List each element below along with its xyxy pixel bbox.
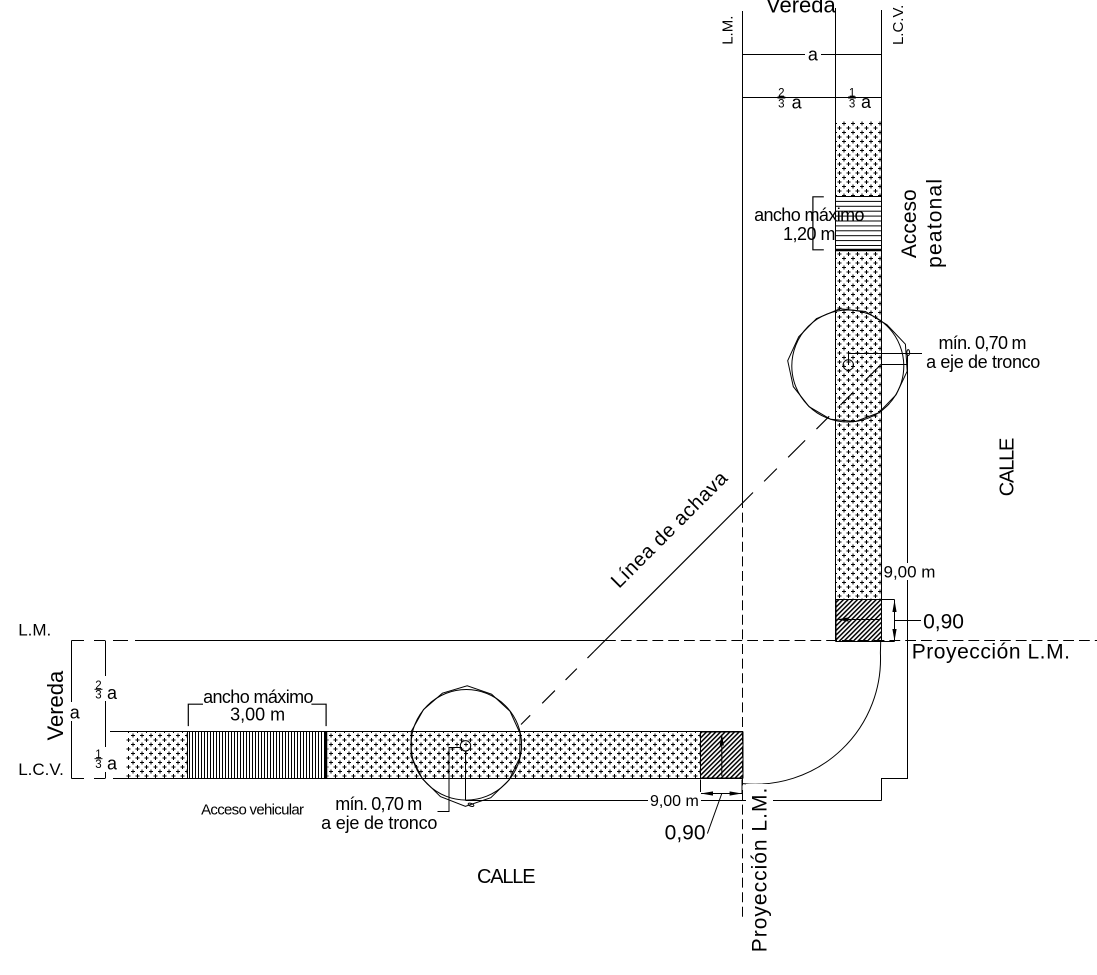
svg-text:Acceso vehicular: Acceso vehicular (201, 802, 304, 819)
svg-text:Proyección L.M.: Proyección L.M. (749, 787, 772, 953)
svg-text:peatonal: peatonal (923, 178, 946, 268)
svg-text:3: 3 (849, 99, 855, 111)
svg-text:a: a (861, 92, 872, 112)
svg-text:CALLE: CALLE (477, 866, 535, 888)
svg-text:Vereda: Vereda (766, 0, 836, 17)
svg-text:a: a (107, 754, 118, 774)
svg-text:L.M.: L.M. (18, 621, 51, 640)
svg-text:Acceso: Acceso (898, 189, 921, 258)
svg-text:L.C.V.: L.C.V. (18, 760, 64, 779)
svg-text:0,90: 0,90 (665, 821, 706, 844)
svg-text:Vereda: Vereda (43, 670, 68, 740)
svg-text:a eje de tronco: a eje de tronco (321, 813, 437, 833)
svg-text:3,00 m: 3,00 m (230, 705, 285, 725)
svg-text:Proyección L.M.: Proyección L.M. (912, 641, 1071, 664)
svg-text:CALLE: CALLE (997, 438, 1019, 496)
svg-text:mín. 0,70 m: mín. 0,70 m (335, 794, 421, 814)
svg-text:a eje de tronco: a eje de tronco (926, 352, 1040, 372)
svg-text:a: a (107, 683, 118, 703)
svg-text:L.M.: L.M. (720, 16, 737, 45)
svg-text:3: 3 (95, 690, 101, 702)
svg-text:a: a (808, 44, 819, 64)
svg-text:9,00 m: 9,00 m (650, 793, 699, 810)
svg-text:9,00 m: 9,00 m (884, 563, 936, 582)
svg-text:a: a (792, 93, 803, 113)
svg-text:mín. 0,70 m: mín. 0,70 m (939, 333, 1026, 353)
svg-text:1,20 m: 1,20 m (783, 224, 835, 244)
svg-text:L.C.V.: L.C.V. (890, 5, 907, 45)
svg-text:a: a (70, 703, 81, 723)
svg-text:ancho máximo: ancho máximo (754, 205, 864, 225)
svg-text:0,90: 0,90 (923, 611, 964, 634)
svg-text:3: 3 (95, 759, 101, 771)
svg-text:3: 3 (778, 99, 784, 111)
